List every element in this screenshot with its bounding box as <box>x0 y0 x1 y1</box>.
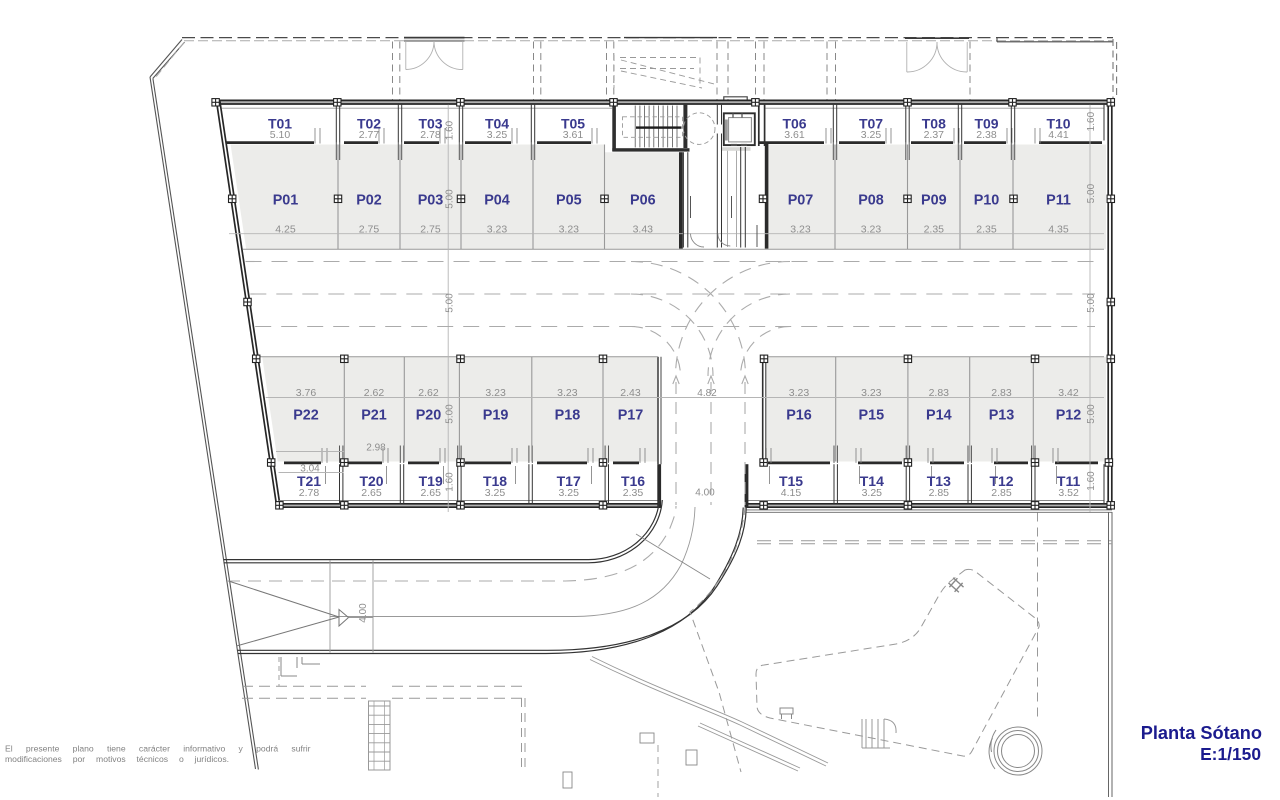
svg-text:El presente plano tiene caráct: El presente plano tiene carácter informa… <box>5 744 311 754</box>
svg-text:3.23: 3.23 <box>487 224 508 236</box>
svg-text:P18: P18 <box>555 408 581 424</box>
svg-text:P11: P11 <box>1046 192 1071 208</box>
svg-text:3.42: 3.42 <box>1058 387 1079 399</box>
svg-text:P07: P07 <box>788 192 814 208</box>
svg-text:P04: P04 <box>484 192 510 208</box>
svg-text:4.41: 4.41 <box>1048 129 1069 141</box>
svg-text:4.00: 4.00 <box>358 603 369 623</box>
svg-text:2.83: 2.83 <box>929 387 950 399</box>
svg-text:P12: P12 <box>1056 408 1082 424</box>
svg-text:2.65: 2.65 <box>420 487 441 499</box>
svg-text:2.37: 2.37 <box>924 129 945 141</box>
svg-text:5.00: 5.00 <box>1086 293 1097 313</box>
svg-text:4.82: 4.82 <box>697 388 717 399</box>
svg-text:P13: P13 <box>989 408 1015 424</box>
svg-text:2.65: 2.65 <box>361 487 382 499</box>
svg-text:P08: P08 <box>858 192 884 208</box>
svg-text:3.23: 3.23 <box>789 387 810 399</box>
svg-text:3.25: 3.25 <box>487 129 508 141</box>
svg-text:P21: P21 <box>361 408 387 424</box>
svg-text:3.43: 3.43 <box>633 224 654 236</box>
svg-text:2.78: 2.78 <box>299 487 320 499</box>
svg-text:2.85: 2.85 <box>929 487 950 499</box>
svg-text:2.62: 2.62 <box>364 387 385 399</box>
svg-text:5.00: 5.00 <box>445 189 456 209</box>
svg-text:3.23: 3.23 <box>790 224 811 236</box>
svg-text:P16: P16 <box>786 408 812 424</box>
svg-text:5.10: 5.10 <box>270 129 291 141</box>
svg-text:P22: P22 <box>293 408 319 424</box>
svg-text:P17: P17 <box>618 408 644 424</box>
svg-text:modificaciones por motivos téc: modificaciones por motivos técnicos o ju… <box>5 754 229 764</box>
svg-text:P19: P19 <box>483 408 509 424</box>
svg-text:2.38: 2.38 <box>976 129 997 141</box>
svg-text:3.52: 3.52 <box>1058 487 1079 499</box>
svg-text:3.25: 3.25 <box>862 487 883 499</box>
svg-text:1.60: 1.60 <box>445 472 456 492</box>
svg-text:3.04: 3.04 <box>300 463 320 474</box>
svg-text:1.60: 1.60 <box>1086 111 1097 131</box>
svg-text:5.00: 5.00 <box>445 404 456 424</box>
svg-text:P14: P14 <box>926 408 952 424</box>
svg-text:5.00: 5.00 <box>1086 183 1097 203</box>
svg-text:2.78: 2.78 <box>420 129 441 141</box>
svg-text:2.83: 2.83 <box>991 387 1012 399</box>
svg-text:2.98: 2.98 <box>366 442 386 453</box>
svg-text:P03: P03 <box>418 192 444 208</box>
svg-text:2.75: 2.75 <box>359 224 380 236</box>
svg-text:1.60: 1.60 <box>1086 471 1097 491</box>
svg-text:3.25: 3.25 <box>485 487 506 499</box>
svg-text:2.35: 2.35 <box>976 224 997 236</box>
svg-text:3.61: 3.61 <box>784 129 805 141</box>
svg-text:P20: P20 <box>416 408 442 424</box>
svg-text:P15: P15 <box>858 408 884 424</box>
svg-text:Planta Sótano: Planta Sótano <box>1141 723 1262 743</box>
svg-text:3.25: 3.25 <box>861 129 882 141</box>
svg-text:3.23: 3.23 <box>559 224 580 236</box>
svg-text:2.75: 2.75 <box>420 224 441 236</box>
svg-text:P05: P05 <box>556 192 582 208</box>
svg-text:P06: P06 <box>630 192 656 208</box>
svg-text:4.15: 4.15 <box>781 487 802 499</box>
svg-text:P09: P09 <box>921 192 947 208</box>
svg-text:P10: P10 <box>974 192 1000 208</box>
svg-text:4.35: 4.35 <box>1048 224 1069 236</box>
svg-text:3.23: 3.23 <box>861 224 882 236</box>
svg-text:P02: P02 <box>356 192 382 208</box>
svg-text:3.23: 3.23 <box>557 387 578 399</box>
svg-text:3.23: 3.23 <box>861 387 882 399</box>
svg-text:4.00: 4.00 <box>695 488 715 499</box>
svg-text:3.23: 3.23 <box>485 387 506 399</box>
svg-text:5.00: 5.00 <box>445 293 456 313</box>
svg-text:3.61: 3.61 <box>563 129 584 141</box>
svg-text:3.25: 3.25 <box>558 487 579 499</box>
svg-text:E:1/150: E:1/150 <box>1200 744 1261 764</box>
svg-text:1.60: 1.60 <box>445 120 456 140</box>
svg-text:4.25: 4.25 <box>275 224 296 236</box>
svg-text:2.85: 2.85 <box>991 487 1012 499</box>
svg-text:5.00: 5.00 <box>1086 404 1097 424</box>
svg-text:2.62: 2.62 <box>418 387 439 399</box>
svg-text:P01: P01 <box>273 192 299 208</box>
svg-text:3.76: 3.76 <box>296 387 317 399</box>
svg-text:2.35: 2.35 <box>623 487 644 499</box>
svg-text:2.35: 2.35 <box>924 224 945 236</box>
svg-text:2.77: 2.77 <box>359 129 380 141</box>
svg-text:2.43: 2.43 <box>620 387 641 399</box>
